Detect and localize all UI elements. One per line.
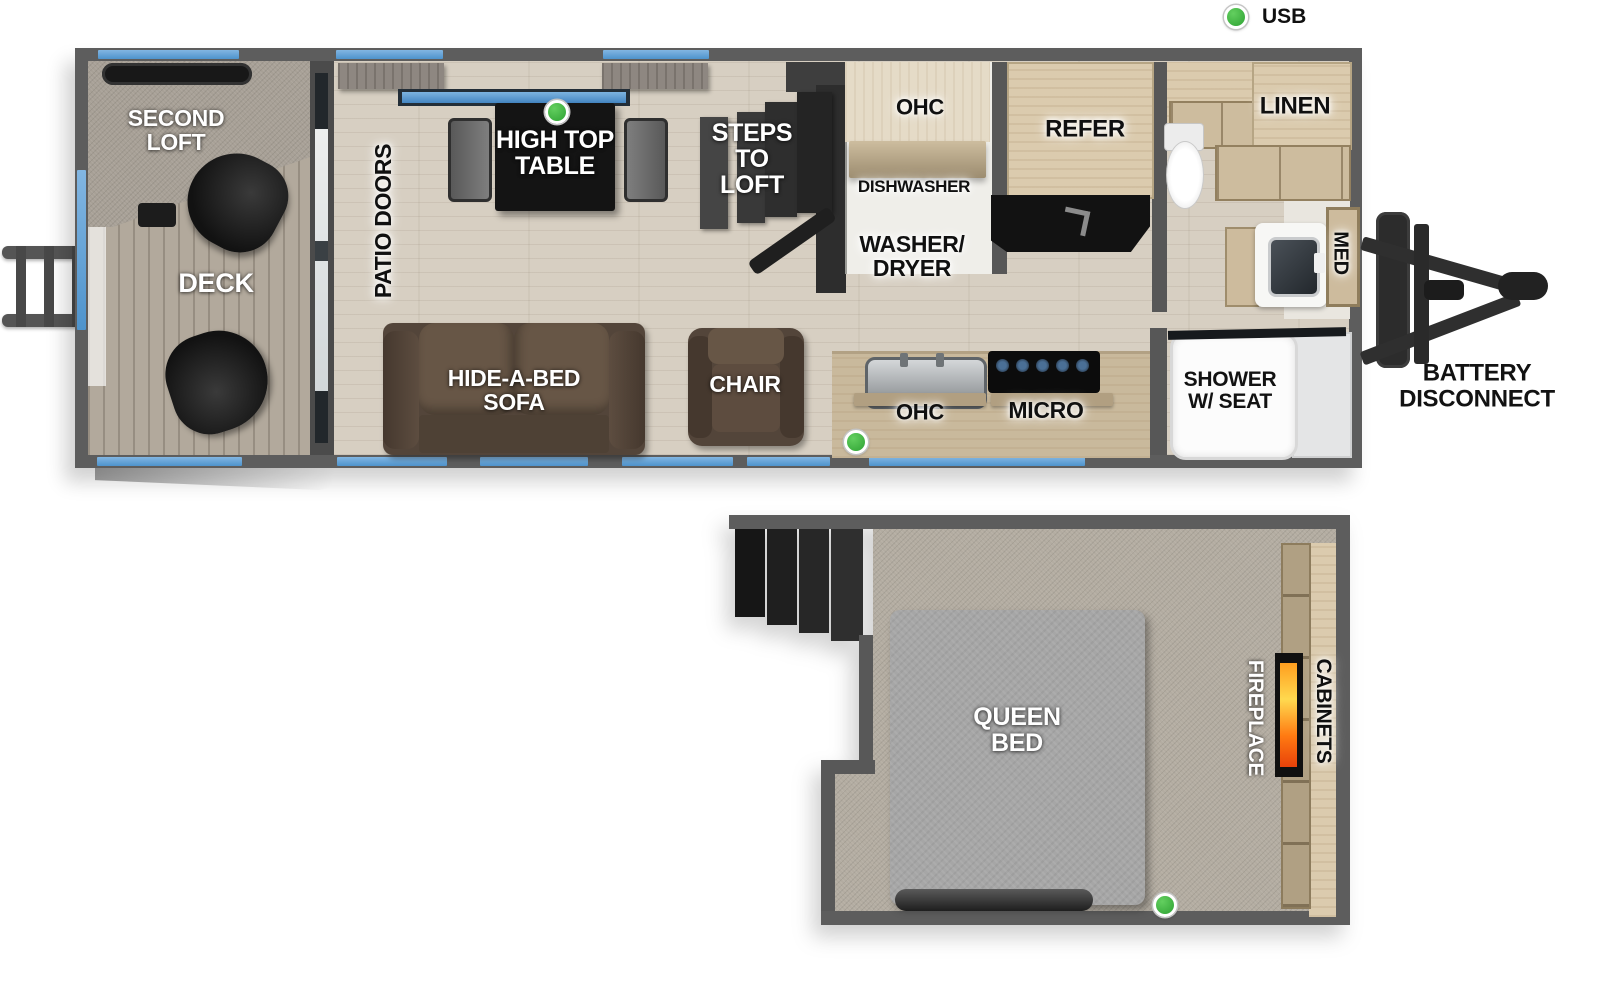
label-micro: MICRO — [1008, 399, 1083, 423]
label-patio-doors: PATIO DOORS — [372, 144, 396, 298]
trailer-tongue — [1360, 200, 1560, 380]
window-strip — [869, 457, 1085, 466]
loft-floorplan: QUEEN BED FIREPLACE CABINETS — [725, 515, 1350, 925]
usb-indicator — [545, 100, 569, 124]
sink-faucet — [900, 353, 908, 367]
main-interior: SECOND LOFT DECK PATIO DOORS HIGH TOP TA… — [88, 61, 1349, 455]
label-chair: CHAIR — [709, 373, 780, 397]
dishwasher-drawer — [849, 141, 986, 178]
sofa-armrest — [383, 331, 419, 449]
label-med: MED — [1330, 231, 1351, 275]
wall — [821, 911, 1350, 925]
table-stool — [448, 118, 492, 202]
shower-seat — [1292, 332, 1352, 458]
label-hide-a-bed-sofa: HIDE-A-BED SOFA — [448, 367, 580, 415]
loft-stairs — [735, 529, 765, 617]
stove-burner — [1056, 359, 1069, 372]
stair-cap-wall — [729, 515, 861, 529]
loft-stairs — [767, 529, 797, 625]
window-strip — [97, 457, 242, 466]
loft-railing — [821, 760, 875, 774]
loft-railing — [821, 774, 835, 911]
usb-indicator — [844, 430, 868, 454]
label-linen: LINEN — [1260, 95, 1331, 120]
window-strip — [480, 457, 588, 466]
usb-legend: USB — [1224, 5, 1344, 33]
usb-legend-label: USB — [1262, 5, 1306, 29]
floorplan-canvas: USB — [0, 0, 1600, 1007]
window-valance — [602, 63, 708, 89]
patio-door-frame — [315, 73, 328, 129]
window-strip — [336, 50, 443, 59]
range-stove — [988, 351, 1100, 393]
wall — [1336, 515, 1350, 925]
label-cabinets: CABINETS — [1312, 659, 1334, 764]
loft-stairs — [831, 529, 863, 641]
hitch-coupler — [1498, 272, 1548, 300]
vanity-faucet — [1314, 253, 1325, 273]
label-second-loft: SECOND LOFT — [128, 107, 225, 155]
deck-shadow — [95, 468, 425, 490]
label-ohc-upper: OHC — [896, 97, 944, 120]
table-stool — [624, 118, 668, 202]
loft-railing — [859, 635, 873, 774]
faucet-icon — [1061, 207, 1091, 237]
bed-headboard — [895, 889, 1093, 911]
wall — [1152, 62, 1167, 312]
usb-legend-dot — [1224, 5, 1248, 29]
stove-burner — [996, 359, 1009, 372]
vanity-sink — [1268, 237, 1320, 297]
window-strip — [77, 170, 86, 330]
window-strip — [747, 457, 830, 466]
label-fireplace: FIREPLACE — [1244, 660, 1266, 776]
window-strip — [337, 457, 447, 466]
deck-side-table — [138, 203, 176, 227]
label-deck: DECK — [178, 269, 253, 297]
sofa-armrest — [609, 331, 645, 449]
window-strip — [98, 50, 239, 59]
ladder-rung — [16, 246, 26, 327]
wall — [857, 515, 1350, 529]
window-strip — [603, 50, 709, 59]
stove-burner — [1036, 359, 1049, 372]
main-floorplan: SECOND LOFT DECK PATIO DOORS HIGH TOP TA… — [75, 48, 1362, 468]
loft-storage-tray — [102, 63, 252, 85]
label-steps-to-loft: STEPS TO LOFT — [712, 120, 792, 198]
dinette-window — [402, 92, 626, 103]
label-high-top-table: HIGH TOP TABLE — [496, 127, 614, 179]
patio-door-frame — [315, 241, 328, 261]
patio-door-frame — [315, 391, 328, 443]
window-strip — [622, 457, 733, 466]
chair-back-cushion — [708, 328, 784, 364]
label-shower: SHOWER W/ SEAT — [1184, 369, 1277, 413]
usb-indicator — [1153, 893, 1177, 917]
sofa-seat — [419, 415, 609, 453]
vanity-cabinet — [1225, 227, 1259, 307]
label-battery-disconnect: BATTERY DISCONNECT — [1399, 361, 1555, 414]
label-queen-bed: QUEEN BED — [973, 704, 1060, 756]
loft-stairs — [799, 529, 829, 633]
stove-burner — [1016, 359, 1029, 372]
stove-burner — [1076, 359, 1089, 372]
label-dishwasher: DISHWASHER — [858, 178, 970, 196]
steps-to-loft — [797, 92, 832, 213]
bathroom-toilet — [1166, 141, 1204, 209]
sink-faucet — [936, 353, 944, 367]
wall — [1150, 328, 1167, 455]
window-valance — [338, 63, 444, 89]
linen-cabinet-doors — [1215, 145, 1351, 201]
label-ohc-lower: OHC — [896, 402, 944, 425]
label-washer-dryer: WASHER/ DRYER — [859, 233, 964, 281]
fireplace-flame — [1280, 663, 1297, 767]
queen-bed — [890, 610, 1145, 905]
label-refer: REFER — [1045, 118, 1125, 143]
tongue-jack — [1424, 280, 1464, 300]
ladder-rung — [44, 246, 54, 327]
loft-carpet — [835, 774, 873, 911]
